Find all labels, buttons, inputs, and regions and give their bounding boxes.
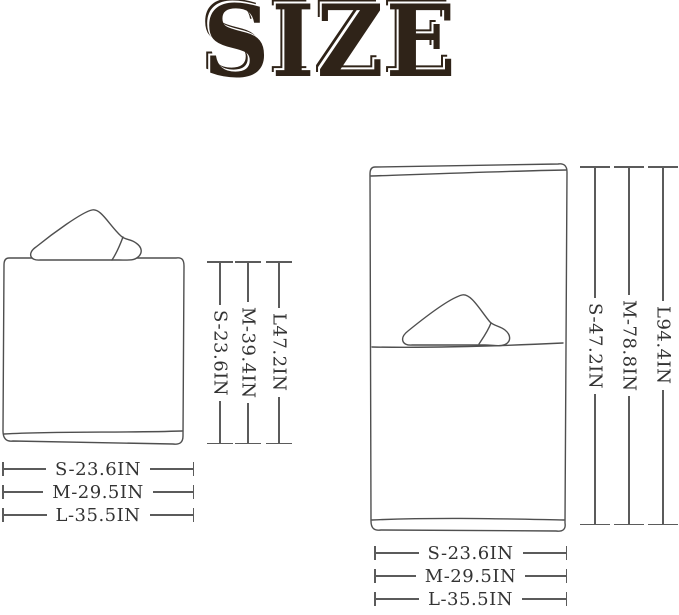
dim-line bbox=[594, 168, 596, 298]
height-dim-unfolded-s: S-47.2IN bbox=[580, 166, 610, 525]
dim-line bbox=[278, 263, 280, 309]
dim-line bbox=[4, 514, 47, 516]
dim-tick-right bbox=[566, 546, 568, 560]
dim-line bbox=[247, 263, 249, 302]
dim-tick-right bbox=[193, 485, 195, 499]
dim-label: L-35.5IN bbox=[419, 589, 522, 610]
dim-label: L47.2IN bbox=[269, 308, 290, 396]
dim-line bbox=[525, 575, 565, 577]
dim-label: S-23.6IN bbox=[419, 543, 523, 564]
dim-tick-bottom bbox=[648, 524, 678, 526]
dim-line bbox=[150, 468, 193, 470]
dim-label: S-23.6IN bbox=[46, 459, 150, 480]
dim-tick-bottom bbox=[614, 524, 644, 526]
dim-tick-bottom bbox=[207, 443, 233, 445]
dim-line bbox=[219, 401, 221, 443]
width-dim-unfolded-l: L-35.5IN bbox=[374, 588, 567, 610]
page-title: SIZE bbox=[203, 0, 458, 100]
height-dim-unfolded-l: L94.4IN bbox=[648, 166, 678, 525]
dim-label: L-35.5IN bbox=[47, 505, 150, 526]
dim-label: M-29.5IN bbox=[43, 482, 152, 503]
dim-label: M-29.5IN bbox=[416, 566, 525, 587]
width-dim-unfolded-s: S-23.6IN bbox=[374, 542, 567, 564]
dim-line bbox=[4, 468, 47, 470]
width-dim-folded-m: M-29.5IN bbox=[2, 481, 194, 503]
dim-line bbox=[150, 514, 193, 516]
dim-tick-right bbox=[566, 569, 568, 583]
dim-label: S-47.2IN bbox=[585, 298, 606, 394]
height-dim-folded-s: S-23.6IN bbox=[207, 261, 233, 444]
dim-tick-right bbox=[193, 508, 195, 522]
dim-label: L94.4IN bbox=[653, 301, 674, 389]
dim-label: M-39.4IN bbox=[238, 302, 259, 403]
width-dim-unfolded-m: M-29.5IN bbox=[374, 565, 567, 587]
dim-line bbox=[628, 396, 630, 523]
dim-label: M-78.8IN bbox=[619, 295, 640, 396]
dim-line bbox=[247, 403, 249, 442]
width-dim-folded-l: L-35.5IN bbox=[2, 504, 194, 526]
dim-tick-right bbox=[193, 462, 195, 476]
dim-line bbox=[662, 168, 664, 302]
size-diagram-page: SIZE S-23.6IN M-39.4IN L47.2IN bbox=[0, 0, 679, 615]
height-dim-folded-m: M-39.4IN bbox=[235, 261, 261, 444]
dim-line bbox=[153, 491, 193, 493]
height-dim-folded-l: L47.2IN bbox=[266, 261, 292, 444]
dim-tick-right bbox=[566, 592, 568, 606]
dim-line bbox=[4, 491, 44, 493]
dim-line bbox=[376, 575, 416, 577]
folded-towel-hood-outline bbox=[31, 210, 142, 260]
dim-tick-bottom bbox=[580, 524, 610, 526]
dim-label: S-23.6IN bbox=[210, 305, 231, 401]
dim-line bbox=[594, 394, 596, 524]
dim-line bbox=[662, 390, 664, 524]
dim-line bbox=[219, 263, 221, 305]
dim-line bbox=[376, 598, 420, 600]
width-dim-folded-s: S-23.6IN bbox=[2, 458, 194, 480]
folded-towel-body-outline bbox=[3, 258, 184, 444]
dim-tick-bottom bbox=[235, 443, 261, 445]
unfolded-towel-illustration bbox=[360, 155, 579, 545]
dim-tick-bottom bbox=[266, 443, 292, 445]
dim-line bbox=[278, 397, 280, 443]
height-dim-unfolded-m: M-78.8IN bbox=[614, 166, 644, 525]
folded-towel-illustration bbox=[0, 205, 200, 450]
dim-line bbox=[523, 552, 566, 554]
dim-line bbox=[628, 168, 630, 295]
dim-line bbox=[376, 552, 419, 554]
dim-line bbox=[522, 598, 566, 600]
